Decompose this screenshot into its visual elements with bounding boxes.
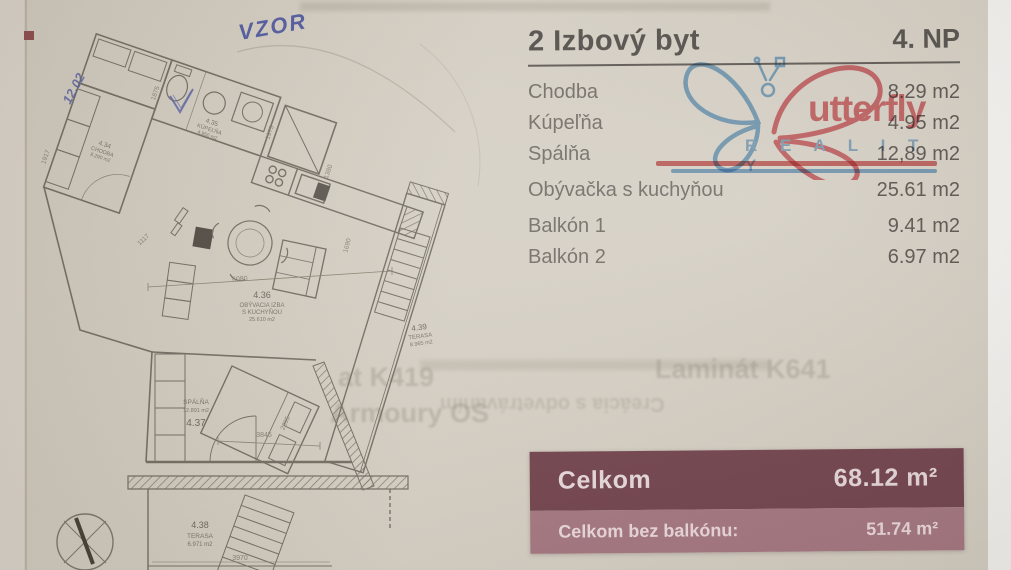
page-title: 2 Izbový byt	[528, 24, 700, 58]
dim-6080	[148, 267, 392, 291]
svg-text:4.38: 4.38	[191, 520, 209, 530]
info-panel: 2 Izbový byt 4. NP Chodba 8.29 m2 Kúpeľň…	[528, 24, 960, 277]
sink-icon	[200, 89, 228, 117]
svg-text:25.610 m2: 25.610 m2	[249, 317, 275, 323]
svg-text:1917: 1917	[40, 149, 51, 165]
header: 2 Izbový byt 4. NP	[528, 22, 960, 58]
room-row: Chodba 8.29 m2	[528, 81, 960, 112]
room-label: Spálňa	[528, 143, 590, 166]
terrace-2-label: 4.38 TERASA 6.971 m2 3970	[187, 520, 248, 562]
room-row: Obývačka s kuchyňou 25.61 m2	[528, 179, 960, 210]
stairs	[217, 495, 294, 570]
terrace-2	[128, 476, 408, 570]
bathroom	[152, 60, 281, 156]
stove-icon	[268, 165, 277, 174]
summary-net-value: 51.74 m²	[866, 518, 938, 540]
handwritten-note: 12.02	[59, 70, 88, 106]
shaft	[268, 105, 337, 174]
room-area: 25.61 m2	[877, 179, 960, 202]
room-row: Balkón 1 9.41 m2	[528, 215, 960, 246]
logo-underline-red	[656, 161, 937, 166]
pencil-arc	[237, 46, 455, 132]
bed	[201, 366, 319, 474]
room-label: Kúpeľňa	[528, 112, 603, 135]
room-labels-upper: 4.35 KÚPEĽŇA 4.950 m2 4.34 CHODBA 8.290 …	[88, 85, 225, 196]
floorplan-drawing: 4.35 KÚPEĽŇA 4.950 m2 4.34 CHODBA 8.290 …	[0, 0, 510, 570]
summary-net-label: Celkom bez balkónu:	[558, 520, 738, 543]
svg-text:4.39: 4.39	[411, 322, 428, 333]
svg-text:OBÝVACIA IZBA: OBÝVACIA IZBA	[240, 302, 285, 309]
floor-number: 4. NP	[892, 23, 960, 54]
room-list: Chodba 8.29 m2 Kúpeľňa 4.95 m2 Spálňa 12…	[528, 81, 960, 277]
summary-total-row: Celkom 68.12 m²	[530, 448, 964, 511]
svg-text:1380: 1380	[323, 163, 334, 179]
washer-icon	[231, 92, 273, 131]
svg-text:S KUCHYŇOU: S KUCHYŇOU	[242, 309, 282, 316]
summary-total-label: Celkom	[558, 466, 652, 496]
room-area: 8.29 m2	[888, 81, 960, 104]
svg-text:SPÁLŇA: SPÁLŇA	[183, 397, 209, 406]
scanned-floorplan-page: at K419 Laminát K641 Creácia s odvetráva…	[0, 0, 1011, 570]
svg-text:3970: 3970	[232, 555, 248, 562]
svg-text:TERASA: TERASA	[187, 533, 214, 540]
tv-desk	[171, 208, 214, 250]
room-row: Kúpeľňa 4.95 m2	[528, 112, 960, 143]
room-area: 9.41 m2	[888, 215, 960, 238]
bedroom-label: SPÁLŇA 12.891 m2 4.37 3845 2395	[183, 397, 292, 439]
room-label: Obývačka s kuchyňou	[528, 179, 724, 202]
bedroom	[155, 354, 320, 474]
room-label: Balkón 2	[528, 246, 606, 269]
washer-drum-icon	[240, 99, 265, 124]
page-crease	[25, 0, 27, 570]
svg-text:3845: 3845	[256, 432, 272, 439]
bedroom-top-wall	[152, 352, 316, 360]
title-underline	[528, 61, 960, 66]
pencil-arc	[420, 44, 480, 186]
room-row: Balkón 2 6.97 m2	[528, 246, 960, 277]
handwritten-checkmark	[170, 89, 193, 112]
left-wall	[44, 187, 152, 462]
summary-net-row: Celkom bez balkónu: 51.74 m²	[530, 507, 964, 554]
room-area: 6.97 m2	[888, 246, 960, 269]
diagonal-wall	[313, 362, 374, 490]
svg-text:4.36: 4.36	[253, 290, 271, 300]
handwritten-vzor: VZOR	[237, 8, 309, 45]
svg-text:1117: 1117	[136, 232, 151, 247]
svg-text:6.971 m2: 6.971 m2	[187, 542, 213, 548]
tree-symbol	[57, 514, 113, 570]
red-mark	[24, 31, 34, 40]
sofa	[273, 240, 326, 298]
svg-text:4.37: 4.37	[186, 418, 206, 429]
room-label: Balkón 1	[528, 215, 606, 238]
logo-underline-blue	[671, 169, 937, 173]
room-area: 4.95 m2	[888, 112, 960, 135]
svg-text:1690: 1690	[342, 237, 353, 253]
summary-total-value: 68.12 m²	[834, 463, 938, 493]
svg-text:12.891 m2: 12.891 m2	[183, 408, 209, 414]
balcony-1-label: 4.39 TERASA 8.965 m2	[407, 321, 434, 348]
stairs	[375, 228, 430, 321]
summary-box: Celkom 68.12 m² Celkom bez balkónu: 51.7…	[530, 448, 965, 554]
page-margin	[988, 0, 1011, 570]
room-label: Chodba	[528, 81, 598, 104]
svg-text:6080: 6080	[232, 275, 248, 283]
page-edge	[0, 0, 24, 570]
